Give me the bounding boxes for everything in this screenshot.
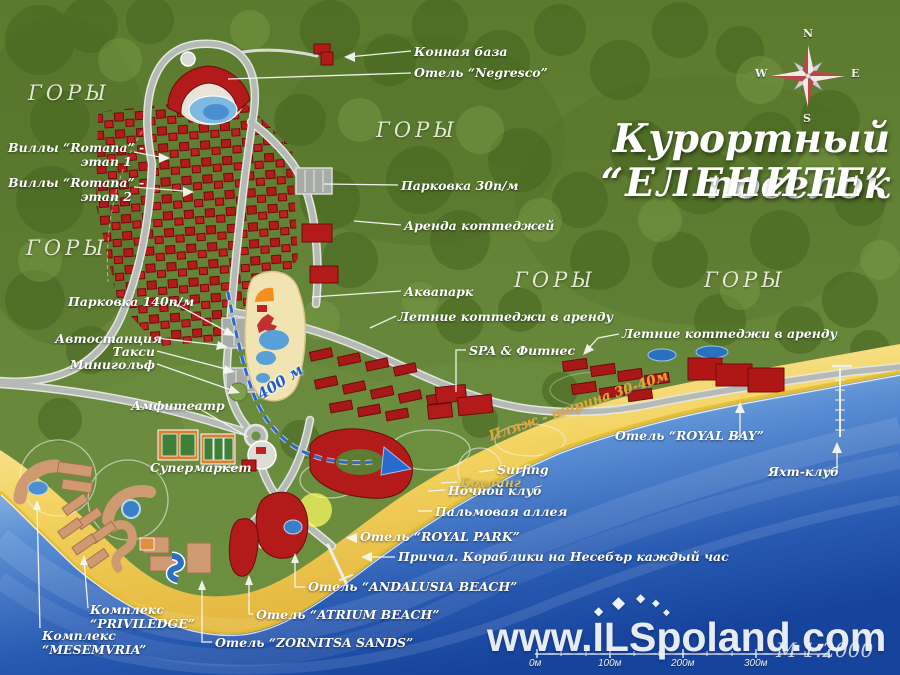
resort-map-screenshot: Курортный поселок “ЕЛЕНИТЕ” ГОРЫ ГОРЫ ГО… <box>0 0 900 675</box>
callout-amphitheatre: Амфитеатр <box>131 399 225 413</box>
callout-summer-cottages-2: Летние коттеджи в аренду <box>622 327 837 341</box>
compass-south-label: S <box>803 112 811 125</box>
compass-west-label: W <box>755 67 767 80</box>
region-label-mountains-2: ГОРЫ <box>376 118 458 142</box>
callout-hotel-andalusia: Отель “ANDALUSIA BEACH” <box>308 580 517 594</box>
map-scale-note: М 1:2000 <box>776 638 873 662</box>
callout-minigolf: Минигольф <box>55 358 155 372</box>
callout-palm-alley: Пальмовая аллея <box>435 505 567 519</box>
callout-hotel-zornitsa: Отель “ZORNITSA SANDS” <box>215 636 413 650</box>
callout-parking-140: Парковка 140п/м <box>68 295 194 309</box>
compass-east-label: E <box>851 67 859 80</box>
callout-pier-boats: Причал. Кораблики на Несебър каждый час <box>398 550 729 564</box>
watermark-diamond-icon: ◆ <box>652 598 660 609</box>
callout-parking-30: Парковка 30п/м <box>401 179 519 193</box>
watermark-diamond-icon: ◆ <box>636 591 645 605</box>
callout-horse-base: Конная база <box>414 45 508 59</box>
watermark-diamond-icon: ◆ <box>594 604 603 618</box>
callout-hotel-negresco: Отель “Negresco” <box>414 66 548 80</box>
region-label-mountains-3: ГОРЫ <box>26 236 108 260</box>
callout-supermarket: Супермаркет <box>150 461 252 475</box>
watermark-diamond-icon: ◆ <box>612 593 625 613</box>
scale-tick-200: 200м <box>671 658 695 669</box>
callout-spa-fitness: SPA & Фитнес <box>469 344 575 358</box>
scale-tick-100: 100м <box>598 658 622 669</box>
callout-night-club: Ночной клуб <box>448 484 542 498</box>
region-label-mountains-1: ГОРЫ <box>28 81 110 105</box>
callout-romana-stage1: Виллы “Romana” -этап 1 <box>8 141 132 169</box>
callout-complex-priviledge: Комплекс“PRIVILEDGE” <box>90 603 195 631</box>
callout-hotel-atrium: Отель “ATRIUM BEACH” <box>256 608 439 622</box>
compass-north-label: N <box>803 27 813 40</box>
watermark-diamond-icon: ◆ <box>663 608 670 618</box>
callout-yacht-club: Яхт-клуб <box>768 465 839 479</box>
region-label-mountains-5: ГОРЫ <box>704 268 786 292</box>
callout-complex-mesemvria: Комплекс“MESEMVRIA” <box>42 629 146 657</box>
map-title-line2: “ЕЛЕНИТЕ” <box>470 160 890 206</box>
callout-cottage-rental: Аренда коттеджей <box>404 219 554 233</box>
callout-aquapark: Аквапарк <box>404 285 473 299</box>
scale-tick-300: 300м <box>744 658 768 669</box>
callout-romana-stage2: Виллы “Romana” -этап 2 <box>8 176 132 204</box>
callout-hotel-royal-bay: Отель “ROYAL BAY” <box>615 429 764 443</box>
callout-hotel-royal-park: Отель “ROYAL PARK” <box>360 530 520 544</box>
region-label-mountains-4: ГОРЫ <box>514 268 596 292</box>
scale-tick-0: 0м <box>529 658 541 669</box>
callout-summer-cottages-1: Летние коттеджи в аренду <box>398 310 613 324</box>
